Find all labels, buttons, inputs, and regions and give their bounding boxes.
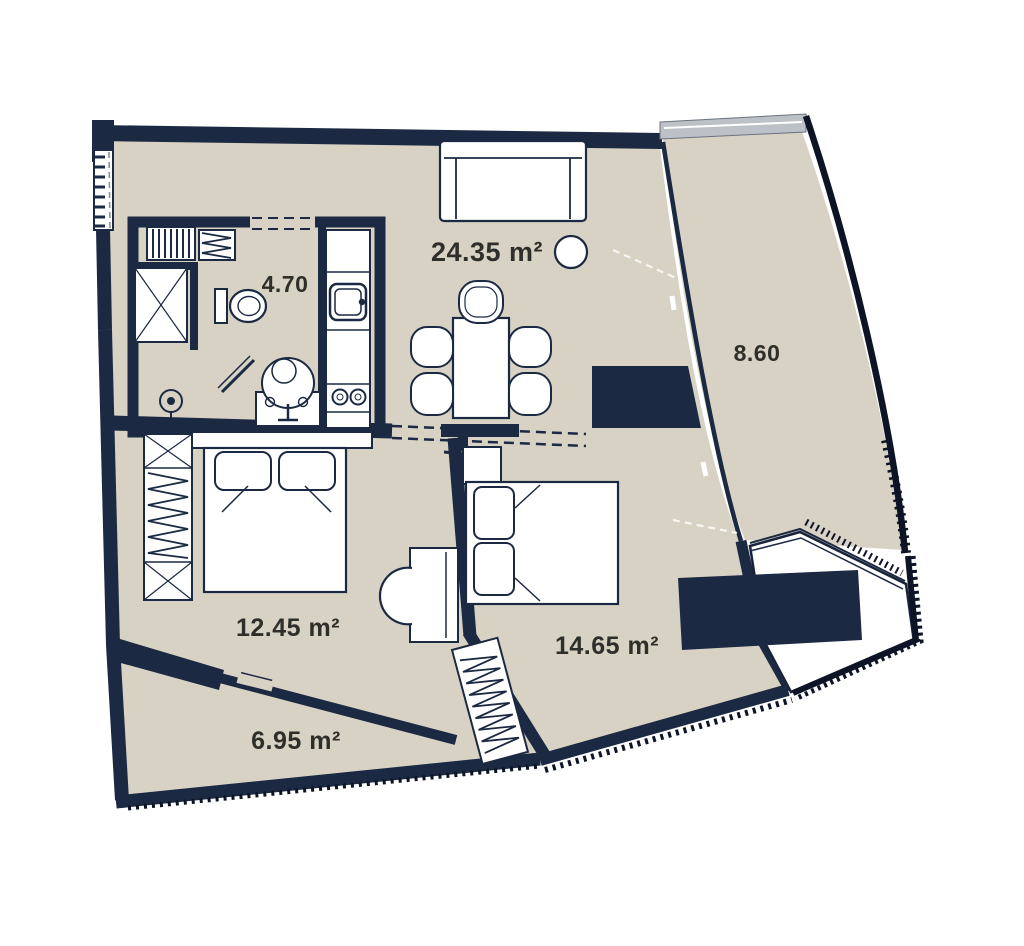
living-navy-block: [592, 366, 701, 428]
label-bedroom-1: 12.45 m²: [236, 614, 340, 642]
top-wall: [96, 133, 662, 141]
label-balcony: 8.60: [734, 340, 781, 366]
sofa: [440, 141, 586, 221]
wedge-navy-block: [678, 570, 862, 650]
dining-chair-left-2: [411, 373, 453, 415]
dining-chair-right-2: [509, 373, 551, 415]
glass-door-gap-2: [703, 462, 706, 476]
floorplan-drawing: 24.35 m² 4.70 8.60 12.45 m² 14.65 m² 6.9…: [0, 0, 1024, 946]
desk: [410, 548, 458, 642]
bed2-side-shelf: [463, 447, 501, 484]
label-bathroom: 4.70: [262, 271, 309, 297]
glass-door-gap-1: [672, 296, 674, 310]
label-bedroom-2: 14.65 m²: [555, 632, 659, 660]
bed2-pillow-bottom: [474, 543, 514, 595]
entry-window: [94, 150, 113, 230]
toilet-tank: [215, 289, 227, 323]
label-hallway: 6.95 m²: [251, 727, 341, 755]
bed1-headboard: [192, 432, 372, 448]
dining-chair-right-1: [509, 327, 551, 367]
floorplan-page: 24.35 m² 4.70 8.60 12.45 m² 14.65 m² 6.9…: [0, 0, 1024, 946]
label-living-room: 24.35 m²: [431, 237, 543, 267]
bed2-pillow-top: [474, 487, 514, 539]
kitchen-faucet: [359, 299, 365, 305]
dining-table: [453, 318, 509, 418]
bed1-pillow-left: [215, 452, 271, 490]
bed1-pillow-right: [279, 452, 335, 490]
towel-rack-lines: [153, 229, 189, 258]
round-side-table: [555, 236, 587, 268]
tv-panel: [441, 424, 519, 437]
floor-drain-center: [167, 397, 175, 405]
dining-chair-left-1: [411, 327, 453, 367]
left-wall-upper: [103, 228, 105, 330]
